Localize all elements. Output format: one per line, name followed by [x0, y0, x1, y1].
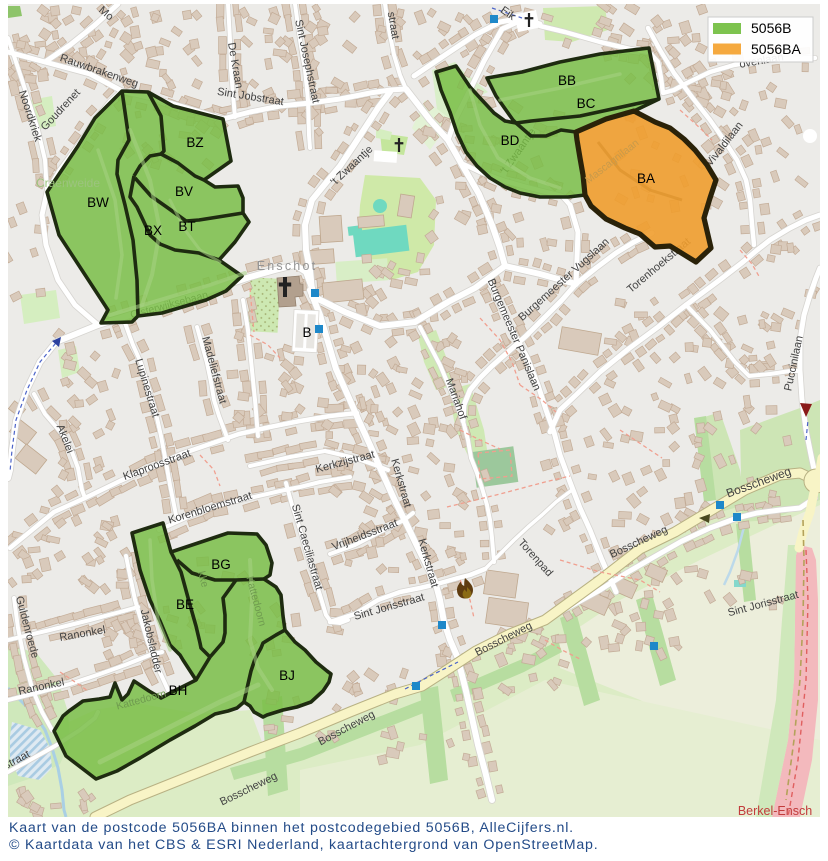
svg-text:BX: BX — [144, 223, 162, 238]
svg-text:5056B: 5056B — [751, 20, 791, 36]
svg-text:BV: BV — [175, 184, 193, 199]
svg-text:BA: BA — [637, 171, 655, 186]
svg-text:BB: BB — [558, 73, 576, 88]
svg-text:BJ: BJ — [279, 668, 295, 683]
svg-text:BG: BG — [211, 557, 231, 572]
svg-text:Berkel-Ensch: Berkel-Ensch — [738, 804, 812, 818]
svg-text:B: B — [302, 325, 311, 340]
svg-text:BH: BH — [169, 683, 188, 698]
svg-text:BC: BC — [577, 96, 596, 111]
svg-text:5056BA: 5056BA — [751, 41, 801, 57]
svg-text:BW: BW — [87, 195, 109, 210]
svg-text:BZ: BZ — [186, 135, 203, 150]
svg-text:Craenweide: Craenweide — [36, 176, 100, 190]
svg-text:BT: BT — [178, 219, 195, 234]
svg-text:BD: BD — [501, 133, 520, 148]
svg-text:Enschot: Enschot — [257, 259, 318, 273]
svg-text:BE: BE — [176, 597, 194, 612]
